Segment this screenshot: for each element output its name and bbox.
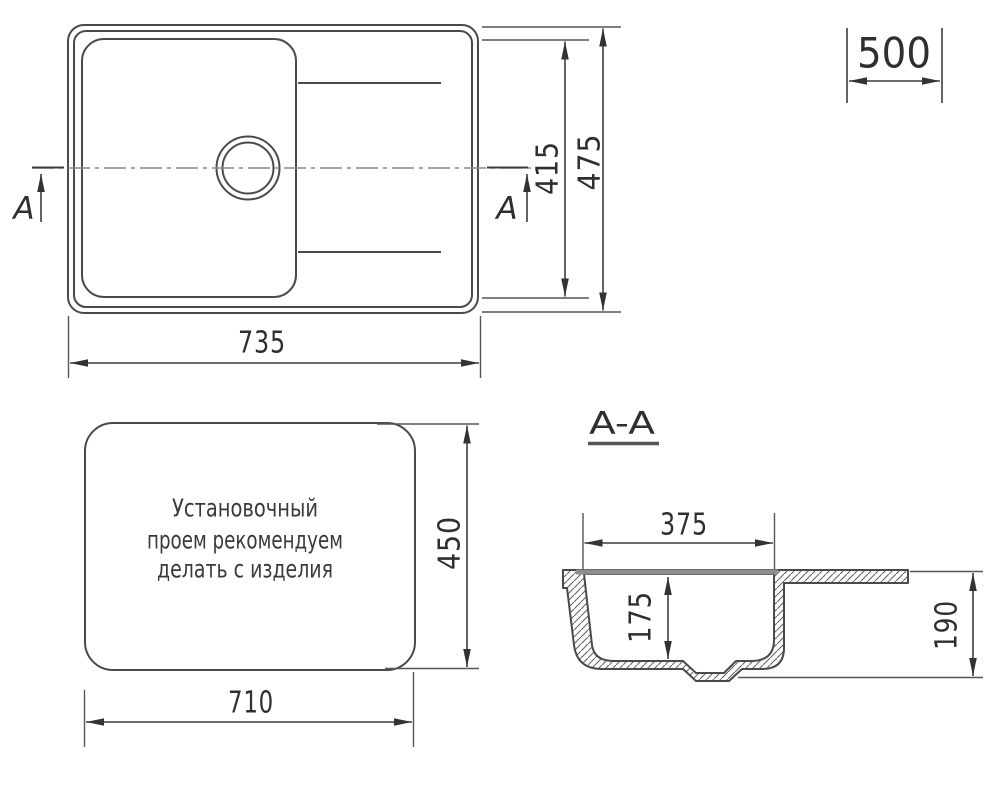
dim-label-190: 190 — [930, 600, 965, 650]
section-letter-left: A — [11, 191, 34, 227]
dim-label-450: 450 — [433, 516, 468, 570]
dim-735: 735 — [69, 316, 481, 378]
dim-500: 500 — [847, 28, 942, 103]
cutout-note-line1: Установочный — [172, 494, 318, 523]
cutout-note-line3: делать с изделия — [157, 555, 333, 584]
dim-450: 450 — [377, 424, 479, 669]
section-letter-right: A — [494, 191, 517, 227]
rim-gray-bar — [576, 570, 778, 575]
dim-label-375: 375 — [660, 508, 708, 543]
dim-label-500: 500 — [857, 29, 931, 78]
dim-175: 175 — [624, 577, 669, 659]
top-view: A A 735 415 475 — [11, 25, 942, 378]
dim-label-735: 735 — [238, 326, 286, 361]
section-mark-left: A — [11, 168, 64, 228]
dim-label-415: 415 — [531, 141, 566, 195]
technical-drawing-sink: A A 735 415 475 — [0, 0, 999, 800]
cutout-view: Установочный проем рекомендуем делать с … — [85, 423, 480, 747]
section-mark-right: A — [487, 168, 528, 228]
dim-label-475: 475 — [573, 134, 608, 191]
drawing-canvas: A A 735 415 475 — [0, 0, 999, 800]
dim-label-175: 175 — [624, 591, 659, 643]
dim-710: 710 — [85, 672, 414, 747]
cutout-note-line2: проем рекомендуем — [147, 526, 343, 555]
dim-415-475: 415 475 — [482, 27, 621, 312]
dim-label-710: 710 — [228, 686, 274, 721]
section-title: A-A — [589, 406, 655, 442]
sink-cross-section — [563, 570, 908, 681]
dim-375: 375 — [583, 508, 775, 571]
section-view: A-A 375 175 190 — [563, 406, 983, 681]
